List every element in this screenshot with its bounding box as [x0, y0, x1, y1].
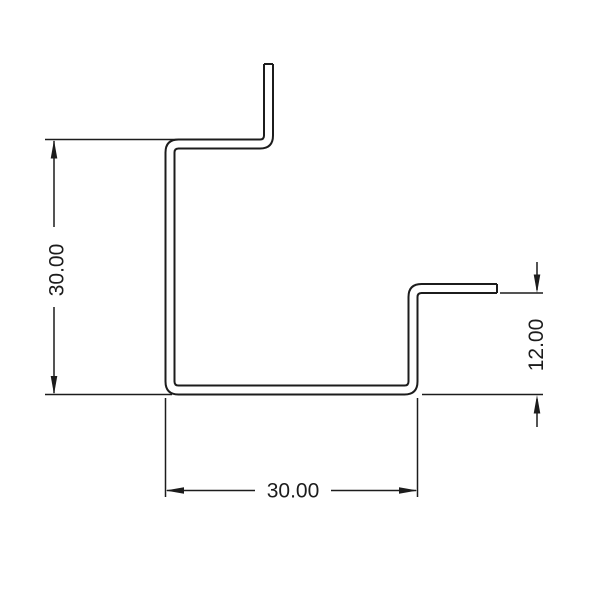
dimension-labels: 30.00 30.00 12.00: [46, 244, 549, 503]
profile-surface-outer: [175, 64, 498, 386]
dimension-arrowheads: [51, 140, 541, 494]
arrowhead-right-bottom-dim: [399, 487, 418, 494]
dimension-lines: [45, 140, 543, 498]
arrowhead-down-right-dim: [534, 275, 541, 294]
dim-right-label: 12.00: [525, 319, 548, 372]
arrowhead-down-left-dim: [51, 376, 58, 395]
arrowhead-left-bottom-dim: [166, 487, 185, 494]
technical-drawing-page: 30.00 30.00 12.00: [0, 0, 600, 600]
arrowhead-up-left-dim: [51, 140, 58, 159]
dim-bottom-label: 30.00: [267, 480, 320, 503]
dim-left-label: 30.00: [46, 244, 69, 297]
sheet-metal-profile-drawing: 30.00 30.00 12.00: [0, 0, 600, 600]
profile-surface-inner: [166, 64, 498, 395]
profile-outline: [166, 64, 498, 395]
arrowhead-up-right-dim: [534, 395, 541, 414]
